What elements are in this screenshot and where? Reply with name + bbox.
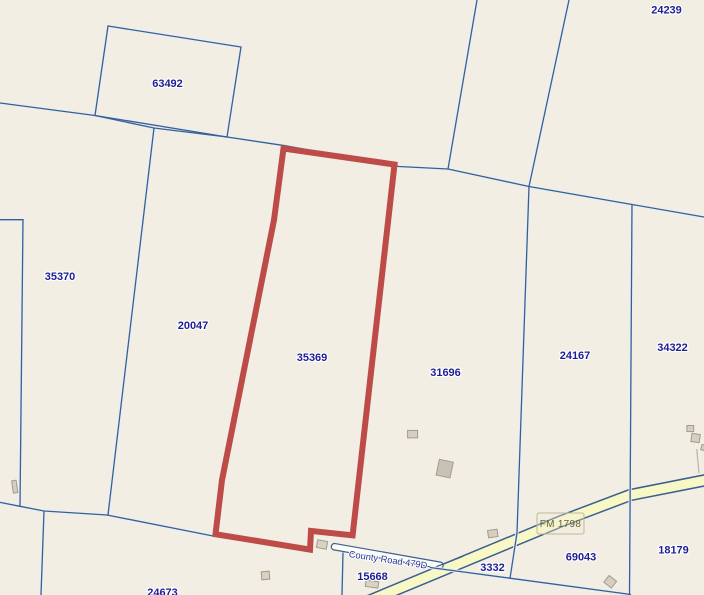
svg-text:35370: 35370 — [45, 271, 76, 283]
svg-text:35369: 35369 — [297, 352, 328, 364]
svg-text:24673: 24673 — [147, 587, 178, 595]
svg-text:FM 1798: FM 1798 — [540, 519, 582, 530]
svg-text:24167: 24167 — [560, 350, 591, 362]
svg-text:24239: 24239 — [651, 5, 682, 17]
svg-text:20047: 20047 — [178, 320, 209, 332]
svg-text:34322: 34322 — [657, 342, 688, 354]
svg-text:3332: 3332 — [480, 562, 504, 574]
svg-text:63492: 63492 — [152, 78, 183, 90]
svg-text:69043: 69043 — [566, 552, 597, 564]
svg-text:18179: 18179 — [658, 545, 689, 557]
svg-text:31696: 31696 — [430, 367, 461, 379]
svg-text:15668: 15668 — [357, 571, 388, 583]
